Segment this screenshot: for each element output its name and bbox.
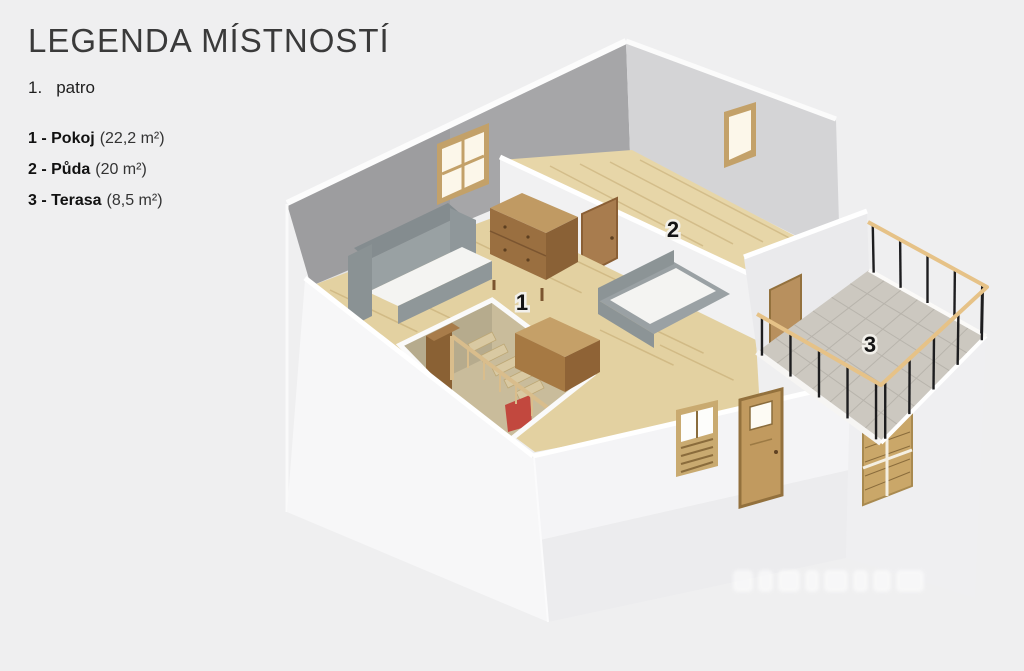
- floor-number: 1.: [28, 78, 42, 97]
- window-shuttered-icon: [676, 400, 718, 477]
- legend: LEGENDA MÍSTNOSTÍ 1.patro 1 - Pokoj(22,2…: [28, 22, 390, 223]
- legend-item-room1: 1 - Pokoj(22,2 m²): [28, 130, 390, 148]
- floor-label: 1.patro: [28, 78, 390, 98]
- legend-item-room2: 2 - Půda(20 m²): [28, 161, 390, 179]
- legend-item-room3: 3 - Terasa(8,5 m²): [28, 192, 390, 210]
- legend-title: LEGENDA MÍSTNOSTÍ: [28, 22, 390, 60]
- room-label-1: 1: [516, 290, 528, 315]
- room-label-2: 2: [667, 217, 679, 242]
- floor-name: patro: [56, 78, 95, 97]
- floorplan-page: LEGENDA MÍSTNOSTÍ 1.patro 1 - Pokoj(22,2…: [0, 0, 1024, 671]
- watermark: [733, 566, 943, 596]
- room-label-3: 3: [864, 332, 876, 357]
- front-door-icon: [740, 389, 782, 507]
- legend-items: 1 - Pokoj(22,2 m²) 2 - Půda(20 m²) 3 - T…: [28, 130, 390, 210]
